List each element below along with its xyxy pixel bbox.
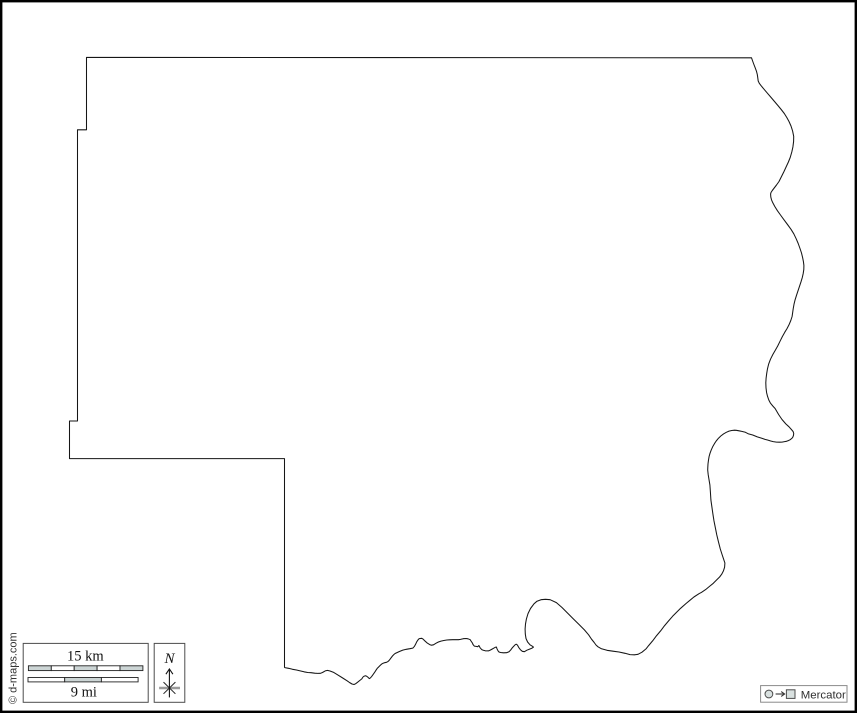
svg-text:9 mi: 9 mi: [71, 685, 97, 701]
svg-text:© d-maps.com: © d-maps.com: [8, 632, 20, 704]
svg-text:N: N: [163, 651, 175, 667]
svg-text:Mercator: Mercator: [801, 690, 846, 702]
svg-text:15 km: 15 km: [67, 649, 104, 665]
